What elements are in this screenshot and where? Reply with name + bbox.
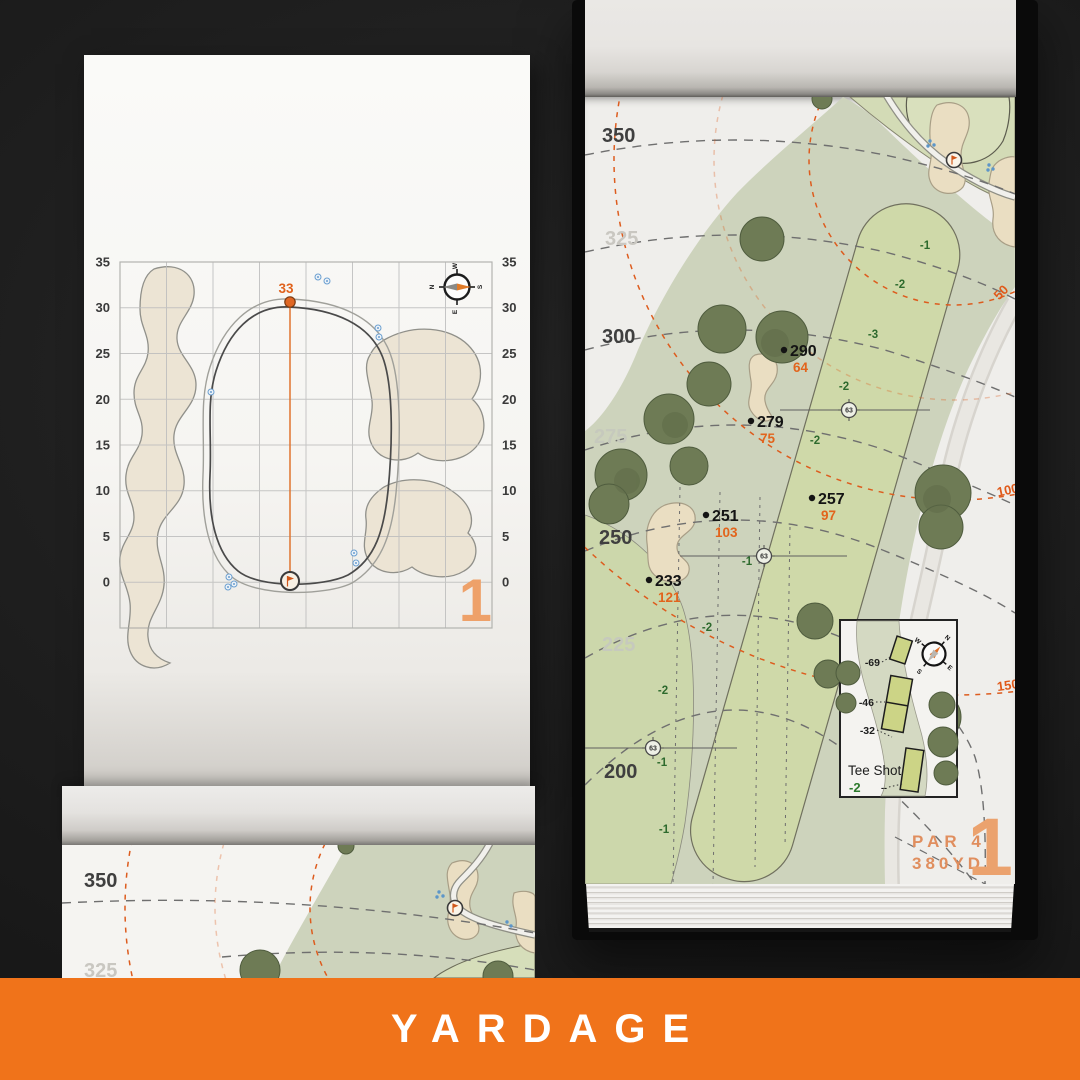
- svg-text:15: 15: [96, 438, 110, 453]
- svg-text:0: 0: [502, 575, 509, 590]
- svg-text:-1: -1: [659, 824, 670, 836]
- svg-text:20: 20: [502, 392, 516, 407]
- bunkers: [120, 267, 484, 668]
- tee-shot-title: Tee Shot: [848, 763, 902, 778]
- svg-text:325: 325: [605, 228, 638, 250]
- svg-text:121: 121: [658, 590, 681, 605]
- svg-text:225: 225: [602, 634, 635, 656]
- svg-text:-1: -1: [742, 556, 753, 568]
- svg-text:25: 25: [96, 346, 110, 361]
- svg-text:290: 290: [790, 343, 817, 360]
- svg-text:35: 35: [96, 255, 110, 270]
- right-book-flipped-page: [585, 0, 1016, 97]
- front-flag-marker: [281, 572, 299, 590]
- svg-text:5: 5: [103, 529, 110, 544]
- svg-text:251: 251: [712, 508, 739, 525]
- svg-text:-69: -69: [865, 657, 880, 669]
- tee-shot-inset: -69 -46 -32 -- Tee Shot -2 N E: [836, 620, 968, 797]
- svg-text:0: 0: [103, 575, 110, 590]
- tee-shot-slope: -2: [849, 780, 861, 795]
- bottom-book-flipped-page: [62, 786, 535, 845]
- hole-number: 1: [459, 567, 492, 634]
- svg-text:325: 325: [84, 960, 117, 978]
- svg-text:200: 200: [604, 761, 637, 783]
- page-compass: N E S W: [429, 262, 484, 314]
- svg-text:-46: -46: [859, 697, 874, 709]
- svg-text:-2: -2: [895, 279, 905, 291]
- pin-depth-line: 33: [278, 281, 299, 590]
- svg-text:15: 15: [502, 438, 516, 453]
- green-flag-marker: [947, 153, 962, 168]
- svg-text:300: 300: [602, 326, 635, 348]
- svg-text:20: 20: [96, 392, 110, 407]
- svg-text:N: N: [429, 284, 436, 289]
- svg-text:-3: -3: [868, 329, 878, 341]
- svg-text:350: 350: [84, 870, 117, 892]
- svg-text:233: 233: [655, 573, 682, 590]
- svg-text:-2: -2: [702, 622, 712, 634]
- tee-distance-labels: 350 325: [84, 870, 117, 978]
- hole-number: 1: [967, 802, 1013, 884]
- svg-text:35: 35: [502, 255, 516, 270]
- svg-text:100: 100: [996, 480, 1015, 499]
- svg-text:W: W: [452, 262, 459, 269]
- hole-map-page: 63 63 63 350 325 300: [585, 97, 1015, 884]
- bottom-book-map-page: 350 325: [62, 845, 535, 978]
- svg-text:350: 350: [602, 125, 635, 147]
- svg-text:--: --: [881, 783, 887, 793]
- svg-text:64: 64: [793, 360, 809, 375]
- hole-info: PAR 4 380YD 1: [912, 802, 1013, 884]
- svg-text:25: 25: [502, 346, 516, 361]
- sprinkler-dots: [208, 274, 382, 590]
- svg-text:97: 97: [821, 508, 836, 523]
- svg-text:103: 103: [715, 525, 738, 540]
- svg-text:63: 63: [845, 408, 853, 415]
- svg-text:-2: -2: [839, 381, 849, 393]
- yardage-banner: YARDAGE: [0, 978, 1080, 1080]
- yardage-book-mockup: 63 63 63 350 325 300: [0, 0, 1080, 1080]
- svg-text:30: 30: [502, 300, 516, 315]
- svg-text:63: 63: [760, 554, 768, 561]
- svg-text:-2: -2: [810, 435, 820, 447]
- right-book-page-stack: [586, 884, 1014, 932]
- hole-map: 63 63 63 350 325 300: [585, 97, 1015, 884]
- svg-text:63: 63: [649, 746, 657, 753]
- banner-title: YARDAGE: [374, 1007, 706, 1052]
- svg-text:150: 150: [996, 676, 1015, 694]
- svg-text:-1: -1: [657, 757, 668, 769]
- green-flag-marker: [448, 901, 463, 916]
- svg-text:250: 250: [599, 527, 632, 549]
- pin-dot: [285, 297, 295, 307]
- svg-text:10: 10: [96, 483, 110, 498]
- svg-text:-32: -32: [860, 725, 875, 737]
- svg-text:30: 30: [96, 300, 110, 315]
- green-detail-map: 35 30 25 20 15 10 5 0 35 30 25 20 15 10 …: [84, 55, 530, 788]
- svg-text:275: 275: [594, 426, 627, 448]
- axis-labels-right: 35 30 25 20 15 10 5 0: [502, 255, 516, 590]
- svg-text:-2: -2: [658, 685, 668, 697]
- svg-text:5: 5: [502, 529, 509, 544]
- svg-text:257: 257: [818, 491, 845, 508]
- axis-labels-left: 35 30 25 20 15 10 5 0: [96, 255, 110, 590]
- svg-text:10: 10: [502, 483, 516, 498]
- svg-text:E: E: [452, 309, 459, 314]
- svg-text:-1: -1: [920, 240, 931, 252]
- svg-text:S: S: [477, 284, 484, 289]
- pin-distance-label: 33: [278, 281, 294, 296]
- svg-text:75: 75: [760, 431, 776, 446]
- bottom-hole-map: 350 325: [62, 845, 535, 978]
- green-detail-page: 35 30 25 20 15 10 5 0 35 30 25 20 15 10 …: [84, 55, 530, 788]
- svg-text:279: 279: [757, 414, 784, 431]
